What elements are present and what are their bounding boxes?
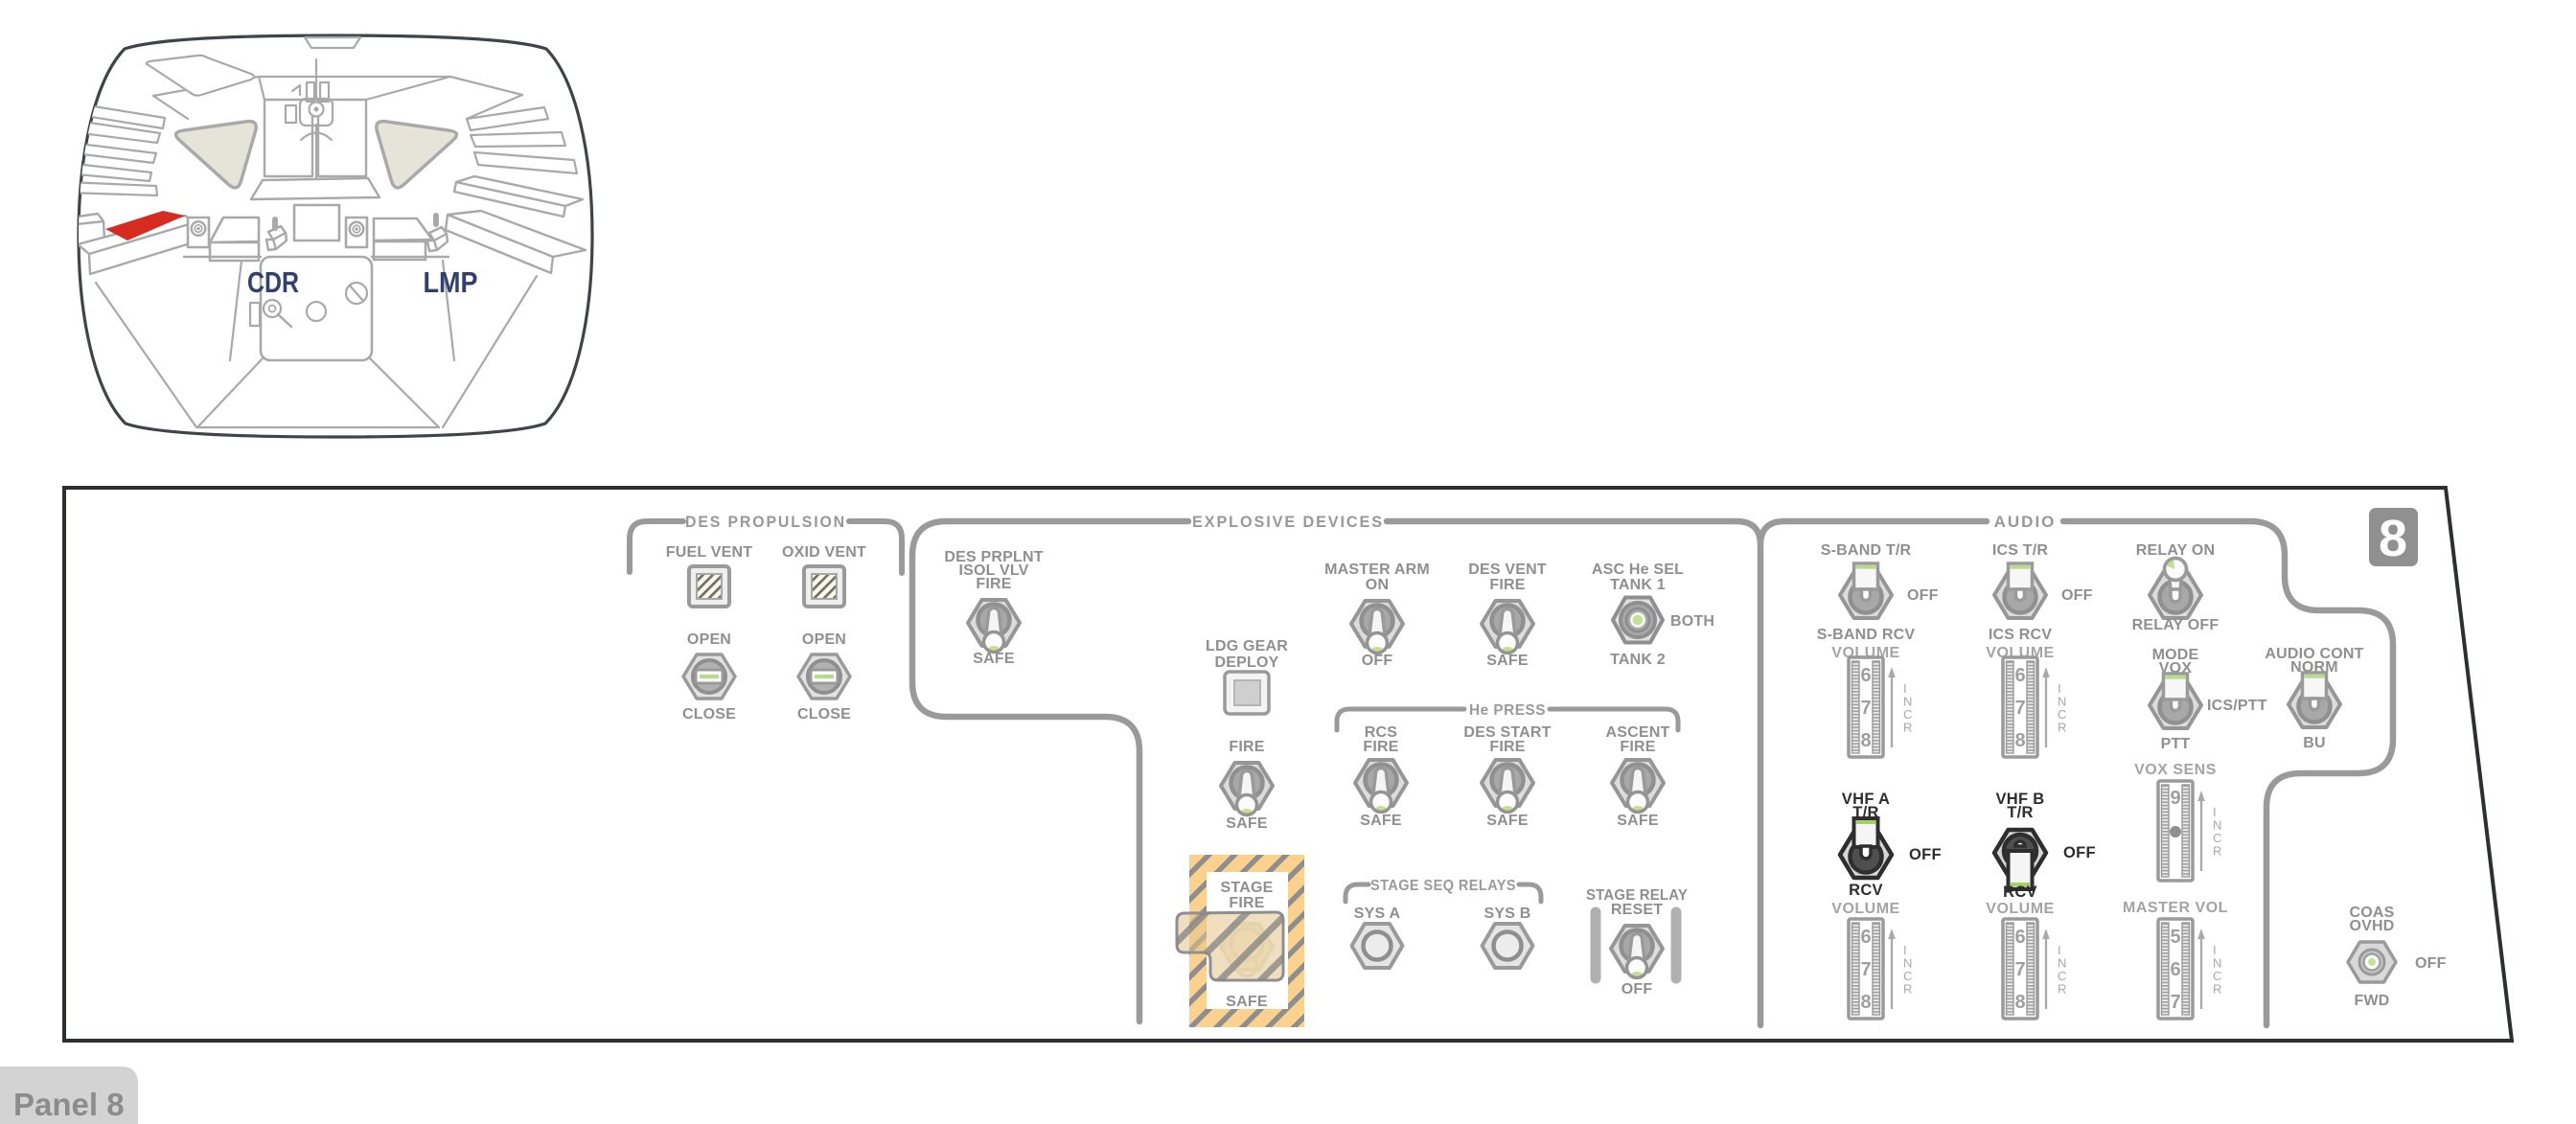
svg-text:VOLUME: VOLUME bbox=[1986, 901, 2054, 917]
svg-text:TANK 1: TANK 1 bbox=[1610, 577, 1666, 593]
svg-text:ICS RCV: ICS RCV bbox=[1989, 627, 2052, 643]
svg-text:LDG GEAR: LDG GEAR bbox=[1206, 638, 1288, 654]
svg-text:CDR: CDR bbox=[247, 265, 299, 299]
svg-text:MASTER VOL: MASTER VOL bbox=[2123, 900, 2228, 916]
svg-text:SYS A: SYS A bbox=[1354, 906, 1401, 922]
svg-text:ICS/PTT: ICS/PTT bbox=[2207, 698, 2267, 714]
svg-text:LMP: LMP bbox=[424, 265, 478, 299]
svg-text:CLOSE: CLOSE bbox=[797, 706, 851, 723]
svg-text:FIRE: FIRE bbox=[1489, 739, 1525, 755]
svg-text:6: 6 bbox=[2014, 927, 2025, 948]
svg-text:8: 8 bbox=[2014, 730, 2025, 751]
svg-text:OFF: OFF bbox=[1621, 981, 1653, 998]
svg-text:7: 7 bbox=[2014, 959, 2025, 980]
svg-text:SAFE: SAFE bbox=[1226, 994, 1268, 1010]
svg-text:6: 6 bbox=[2014, 665, 2025, 686]
svg-text:BU: BU bbox=[2303, 735, 2326, 751]
svg-text:VOX SENS: VOX SENS bbox=[2134, 762, 2217, 778]
svg-text:S-BAND RCV: S-BAND RCV bbox=[1817, 627, 1916, 643]
svg-text:T/R: T/R bbox=[2007, 804, 2033, 821]
svg-text:FIRE: FIRE bbox=[1363, 739, 1398, 755]
svg-text:MASTER ARM: MASTER ARM bbox=[1324, 562, 1430, 578]
svg-text:RELAY OFF: RELAY OFF bbox=[2132, 617, 2219, 633]
svg-text:CLOSE: CLOSE bbox=[682, 706, 736, 723]
svg-text:RCV: RCV bbox=[2003, 883, 2037, 901]
svg-text:7: 7 bbox=[2014, 698, 2025, 719]
svg-text:SAFE: SAFE bbox=[1486, 653, 1529, 669]
svg-text:RCV: RCV bbox=[1849, 882, 1883, 899]
svg-text:5: 5 bbox=[2170, 927, 2180, 948]
svg-text:OVHD: OVHD bbox=[2349, 918, 2394, 934]
svg-text:RELAY ON: RELAY ON bbox=[2136, 542, 2216, 559]
svg-text:EXPLOSIVE DEVICES: EXPLOSIVE DEVICES bbox=[1192, 513, 1384, 531]
svg-text:OPEN: OPEN bbox=[687, 631, 731, 648]
svg-text:8: 8 bbox=[2014, 992, 2025, 1013]
svg-text:VOLUME: VOLUME bbox=[1831, 901, 1899, 917]
svg-text:DES VENT: DES VENT bbox=[1468, 562, 1547, 578]
svg-text:PTT: PTT bbox=[2161, 736, 2191, 752]
svg-text:SAFE: SAFE bbox=[1486, 813, 1529, 829]
svg-text:Panel 8: Panel 8 bbox=[13, 1087, 125, 1122]
svg-text:FIRE: FIRE bbox=[1229, 895, 1264, 911]
svg-text:6: 6 bbox=[2170, 959, 2180, 980]
svg-text:DEPLOY: DEPLOY bbox=[1215, 654, 1279, 671]
svg-text:FIRE: FIRE bbox=[1620, 739, 1655, 755]
svg-text:SAFE: SAFE bbox=[973, 651, 1015, 667]
svg-text:OXID VENT: OXID VENT bbox=[782, 544, 866, 561]
svg-text:RESET: RESET bbox=[1611, 902, 1663, 918]
svg-text:FUEL VENT: FUEL VENT bbox=[666, 544, 752, 561]
svg-text:BOTH: BOTH bbox=[1670, 613, 1714, 630]
svg-text:AUDIO: AUDIO bbox=[1994, 513, 2057, 531]
svg-text:SAFE: SAFE bbox=[1360, 813, 1402, 829]
svg-text:FIRE: FIRE bbox=[1489, 577, 1525, 593]
svg-text:SAFE: SAFE bbox=[1226, 815, 1268, 832]
svg-text:OFF: OFF bbox=[2061, 587, 2093, 604]
svg-text:He PRESS: He PRESS bbox=[1469, 702, 1546, 719]
svg-text:OFF: OFF bbox=[1362, 653, 1393, 669]
svg-text:ON: ON bbox=[1366, 577, 1389, 593]
svg-text:STAGE: STAGE bbox=[1221, 880, 1274, 896]
svg-text:6: 6 bbox=[1860, 665, 1871, 686]
svg-text:6: 6 bbox=[1860, 927, 1871, 948]
svg-text:OPEN: OPEN bbox=[802, 631, 846, 648]
svg-text:8: 8 bbox=[2379, 510, 2407, 567]
svg-text:8: 8 bbox=[1860, 730, 1871, 751]
svg-text:FIRE: FIRE bbox=[976, 576, 1011, 592]
svg-text:OFF: OFF bbox=[1909, 846, 1942, 863]
svg-text:OFF: OFF bbox=[2415, 955, 2447, 972]
svg-text:STAGE SEQ RELAYS: STAGE SEQ RELAYS bbox=[1370, 878, 1516, 894]
svg-text:ICS T/R: ICS T/R bbox=[1992, 542, 2049, 559]
svg-text:ASC He SEL: ASC He SEL bbox=[1592, 562, 1684, 578]
svg-text:S-BAND T/R: S-BAND T/R bbox=[1821, 542, 1912, 559]
svg-text:7: 7 bbox=[1860, 959, 1871, 980]
svg-text:SYS B: SYS B bbox=[1483, 906, 1530, 922]
svg-text:7: 7 bbox=[1860, 698, 1871, 719]
svg-text:DES PROPULSION: DES PROPULSION bbox=[685, 513, 846, 531]
svg-text:FWD: FWD bbox=[2354, 993, 2389, 1009]
svg-text:TANK 2: TANK 2 bbox=[1610, 652, 1666, 668]
svg-text:7: 7 bbox=[2170, 992, 2180, 1013]
svg-text:FIRE: FIRE bbox=[1229, 739, 1264, 755]
svg-text:OFF: OFF bbox=[2063, 844, 2096, 861]
svg-text:9: 9 bbox=[2170, 788, 2180, 809]
svg-text:OFF: OFF bbox=[1907, 587, 1939, 604]
svg-text:SAFE: SAFE bbox=[1617, 813, 1659, 829]
svg-text:8: 8 bbox=[1860, 992, 1871, 1013]
